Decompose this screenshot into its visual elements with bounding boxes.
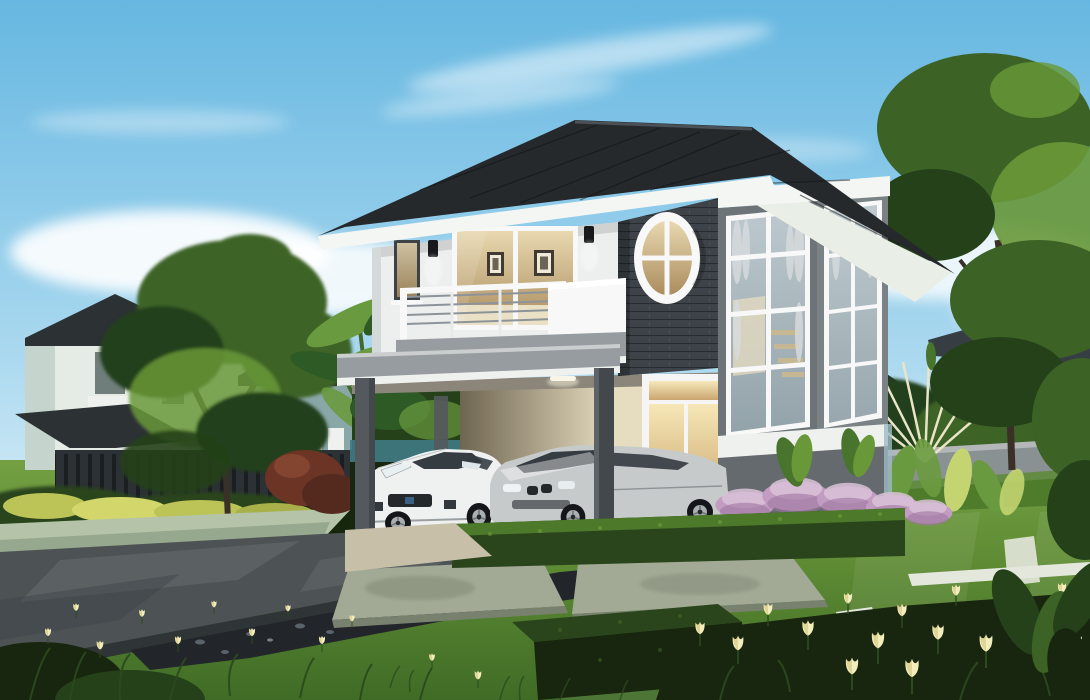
ceiling-light <box>547 376 579 387</box>
kidney-grille <box>527 486 538 495</box>
framed-picture <box>534 250 554 276</box>
bay-window-front <box>726 208 810 437</box>
headlight <box>503 484 521 492</box>
house-exterior-render <box>0 0 1090 700</box>
framed-picture <box>487 252 504 276</box>
render-canvas <box>0 0 1090 700</box>
accent-brick-wall <box>618 198 718 376</box>
